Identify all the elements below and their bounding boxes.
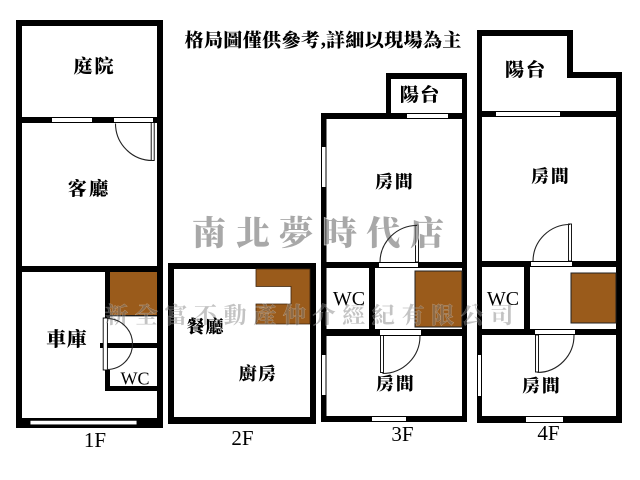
svg-text:WC: WC (121, 369, 150, 389)
svg-text:WC: WC (333, 288, 365, 310)
svg-text:1F: 1F (84, 428, 106, 452)
svg-text:WC: WC (487, 288, 519, 310)
svg-text:2F: 2F (231, 426, 253, 450)
svg-text:3F: 3F (391, 422, 413, 446)
svg-text:4F: 4F (537, 421, 559, 445)
svg-text:,: , (321, 27, 326, 51)
